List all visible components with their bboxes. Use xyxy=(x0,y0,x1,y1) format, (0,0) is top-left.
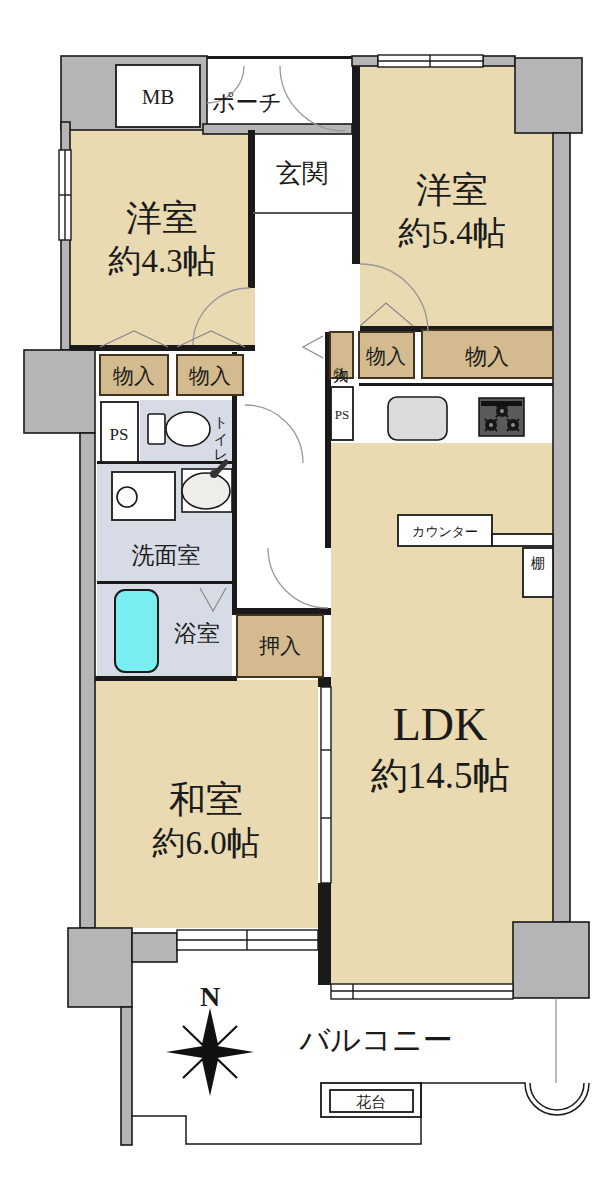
bathtub xyxy=(115,590,158,672)
japanese-room-size: 約6.0帖 xyxy=(151,825,259,861)
ps-label-right: PS xyxy=(335,407,349,422)
compass-icon xyxy=(166,1008,254,1096)
closet-label: 押入 xyxy=(259,634,301,658)
ldk-door-arc xyxy=(268,548,328,608)
counter-wall xyxy=(492,534,553,546)
entrance-label: 玄関 xyxy=(276,159,328,188)
porch-top-line xyxy=(207,56,352,59)
bathroom-label: 浴室 xyxy=(174,621,220,646)
storage-label-2: 物入 xyxy=(188,364,231,388)
stove xyxy=(479,398,524,436)
sliding-door-japanese-ldk xyxy=(321,687,331,883)
porch-label: ポーチ xyxy=(212,90,282,115)
mb-label: MB xyxy=(142,85,175,109)
balcony-label: バルコニー xyxy=(299,1023,453,1056)
japanese-room-name: 和室 xyxy=(169,779,243,820)
entrance-door-arc xyxy=(280,66,345,131)
flower-stand-label: 花台 xyxy=(356,1094,386,1110)
balcony-outline xyxy=(131,998,589,1144)
storage-label-4: 物入 xyxy=(366,345,406,367)
western-room-1-name: 洋室 xyxy=(126,198,198,238)
washbasin xyxy=(182,462,232,512)
ldk-size: 約14.5帖 xyxy=(371,755,510,796)
storage-box-3 xyxy=(330,332,353,378)
toilet-fixture xyxy=(148,412,210,446)
north-label: N xyxy=(200,981,220,1012)
toilet-door-arc xyxy=(245,405,303,463)
western-room-2-size: 約5.4帖 xyxy=(397,215,505,251)
washing-machine-dial xyxy=(117,487,137,507)
kitchen-sink xyxy=(388,397,447,440)
ldk-name: LDK xyxy=(393,699,488,750)
washroom-label: 洗面室 xyxy=(132,543,201,568)
storage-label-1: 物入 xyxy=(112,364,155,388)
ps-label-left: PS xyxy=(110,425,129,444)
shelf-label: 棚 xyxy=(530,556,545,571)
floor-plan: 洋室 約4.3帖 洋室 約5.4帖 LDK 約14.5帖 和室 約6.0帖 玄関… xyxy=(0,0,614,1200)
storage-label-5: 物入 xyxy=(465,344,509,369)
western-room-2-name: 洋室 xyxy=(416,170,488,210)
western-room-1-size: 約4.3帖 xyxy=(107,243,215,279)
counter-label: カウンター xyxy=(412,524,478,539)
toilet-label: トイレ xyxy=(214,407,229,459)
